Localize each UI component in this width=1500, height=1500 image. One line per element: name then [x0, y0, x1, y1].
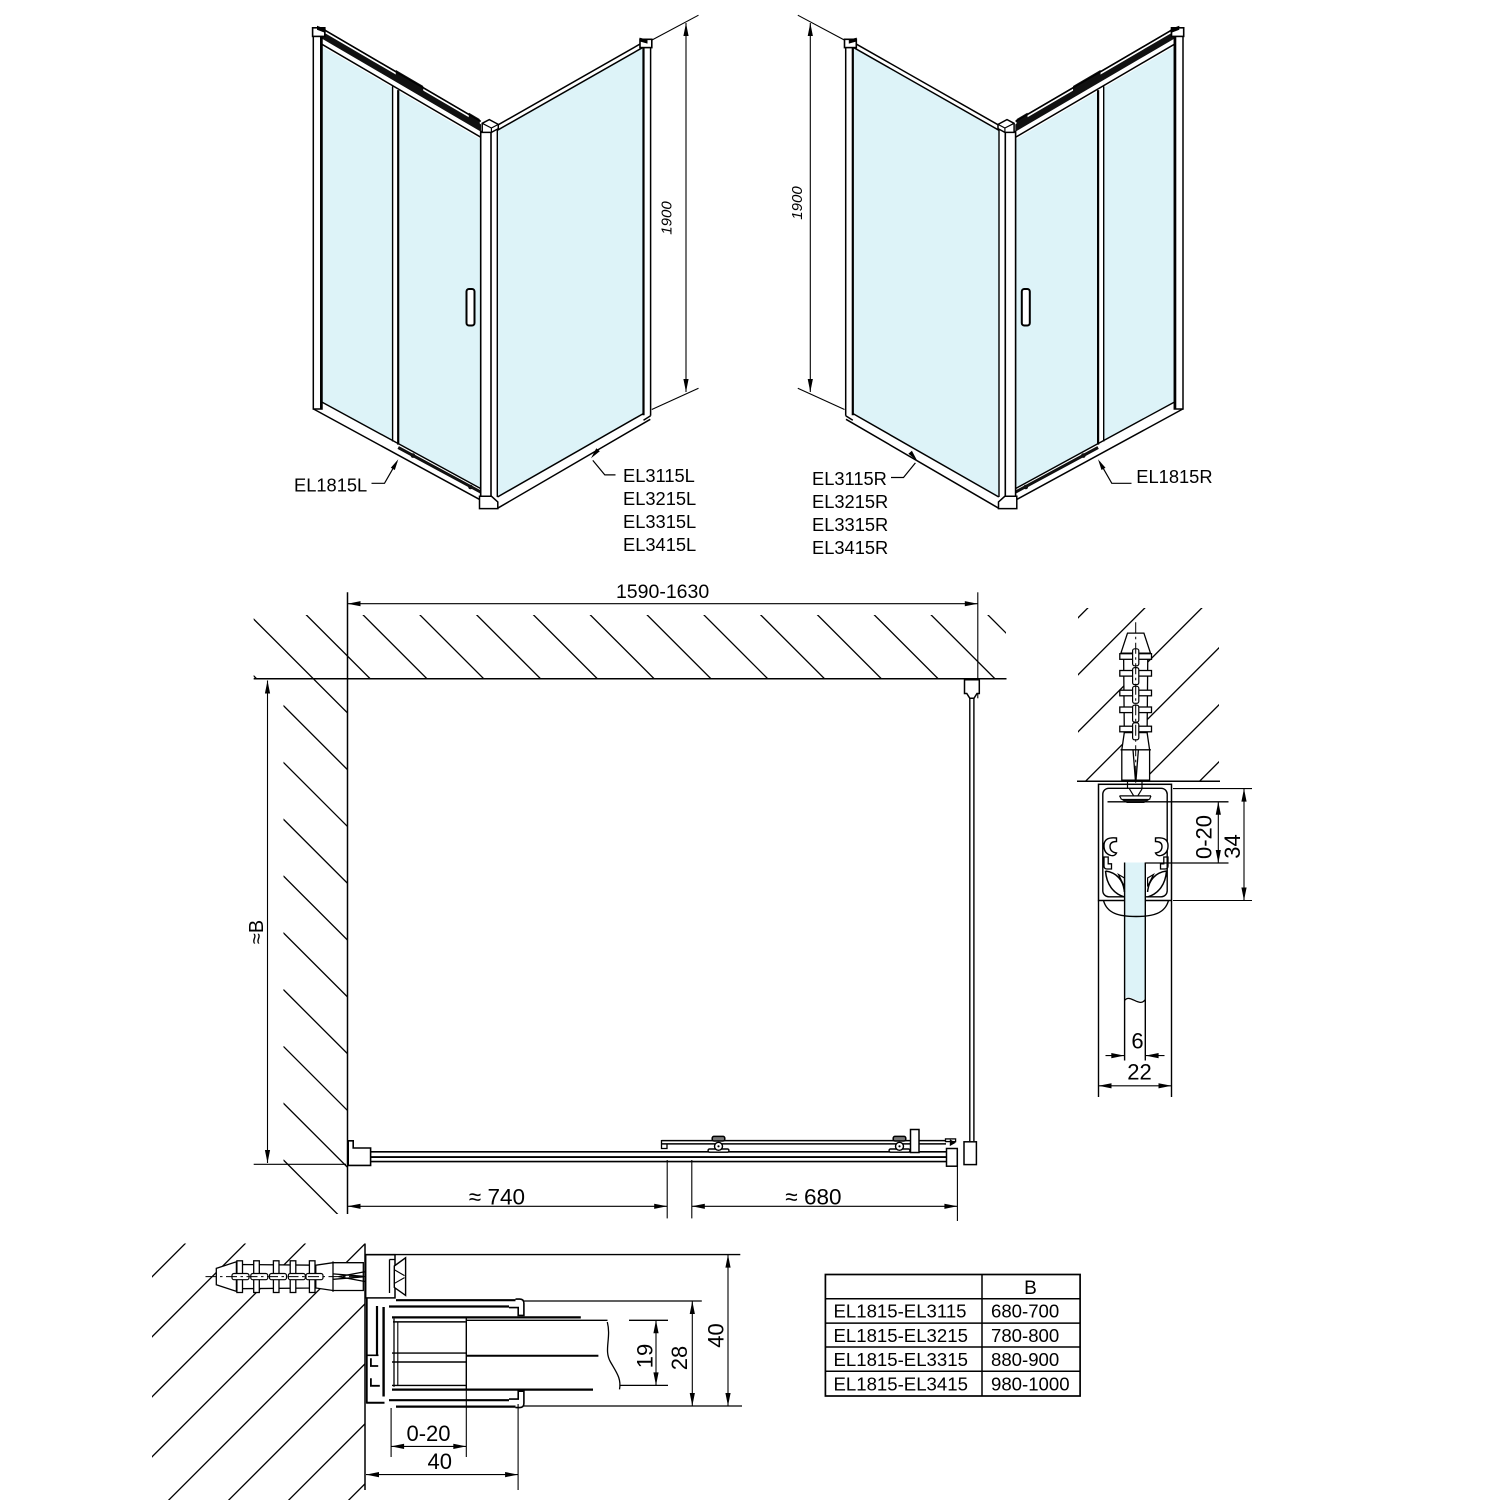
svg-text:1900: 1900: [659, 201, 676, 235]
svg-text:40: 40: [427, 1449, 451, 1474]
svg-text:EL3115R: EL3115R: [812, 468, 887, 489]
svg-text:EL3215L: EL3215L: [623, 488, 696, 509]
svg-text:≈B: ≈B: [246, 920, 268, 944]
svg-text:EL3415R: EL3415R: [812, 537, 888, 558]
svg-text:34: 34: [1220, 834, 1245, 858]
svg-text:EL3115L: EL3115L: [623, 465, 695, 486]
svg-text:EL1815R: EL1815R: [1136, 466, 1212, 487]
svg-text:680-700: 680-700: [991, 1301, 1059, 1322]
svg-text:EL3415L: EL3415L: [623, 534, 696, 555]
svg-text:780-800: 780-800: [991, 1325, 1059, 1346]
svg-text:22: 22: [1127, 1060, 1151, 1085]
svg-text:19: 19: [633, 1344, 658, 1368]
svg-text:1590-1630: 1590-1630: [616, 581, 709, 603]
svg-text:0-20: 0-20: [406, 1421, 450, 1446]
svg-text:40: 40: [704, 1323, 729, 1347]
svg-text:≈ 680: ≈ 680: [785, 1185, 841, 1210]
svg-text:0-20: 0-20: [1192, 815, 1217, 859]
svg-text:6: 6: [1131, 1029, 1143, 1054]
svg-text:EL3315R: EL3315R: [812, 514, 888, 535]
svg-text:28: 28: [667, 1346, 692, 1370]
svg-text:EL1815L: EL1815L: [294, 475, 367, 496]
svg-text:EL1815-EL3215: EL1815-EL3215: [834, 1325, 968, 1346]
svg-text:≈ 740: ≈ 740: [469, 1185, 525, 1210]
svg-text:1900: 1900: [789, 186, 806, 220]
svg-text:980-1000: 980-1000: [991, 1374, 1070, 1395]
svg-text:B: B: [1024, 1278, 1037, 1299]
svg-text:EL3315L: EL3315L: [623, 511, 696, 532]
svg-text:EL1815-EL3315: EL1815-EL3315: [834, 1349, 968, 1370]
svg-text:880-900: 880-900: [991, 1349, 1059, 1370]
svg-text:EL1815-EL3115: EL1815-EL3115: [834, 1301, 967, 1322]
svg-text:EL3215R: EL3215R: [812, 491, 888, 512]
svg-text:EL1815-EL3415: EL1815-EL3415: [834, 1374, 968, 1395]
